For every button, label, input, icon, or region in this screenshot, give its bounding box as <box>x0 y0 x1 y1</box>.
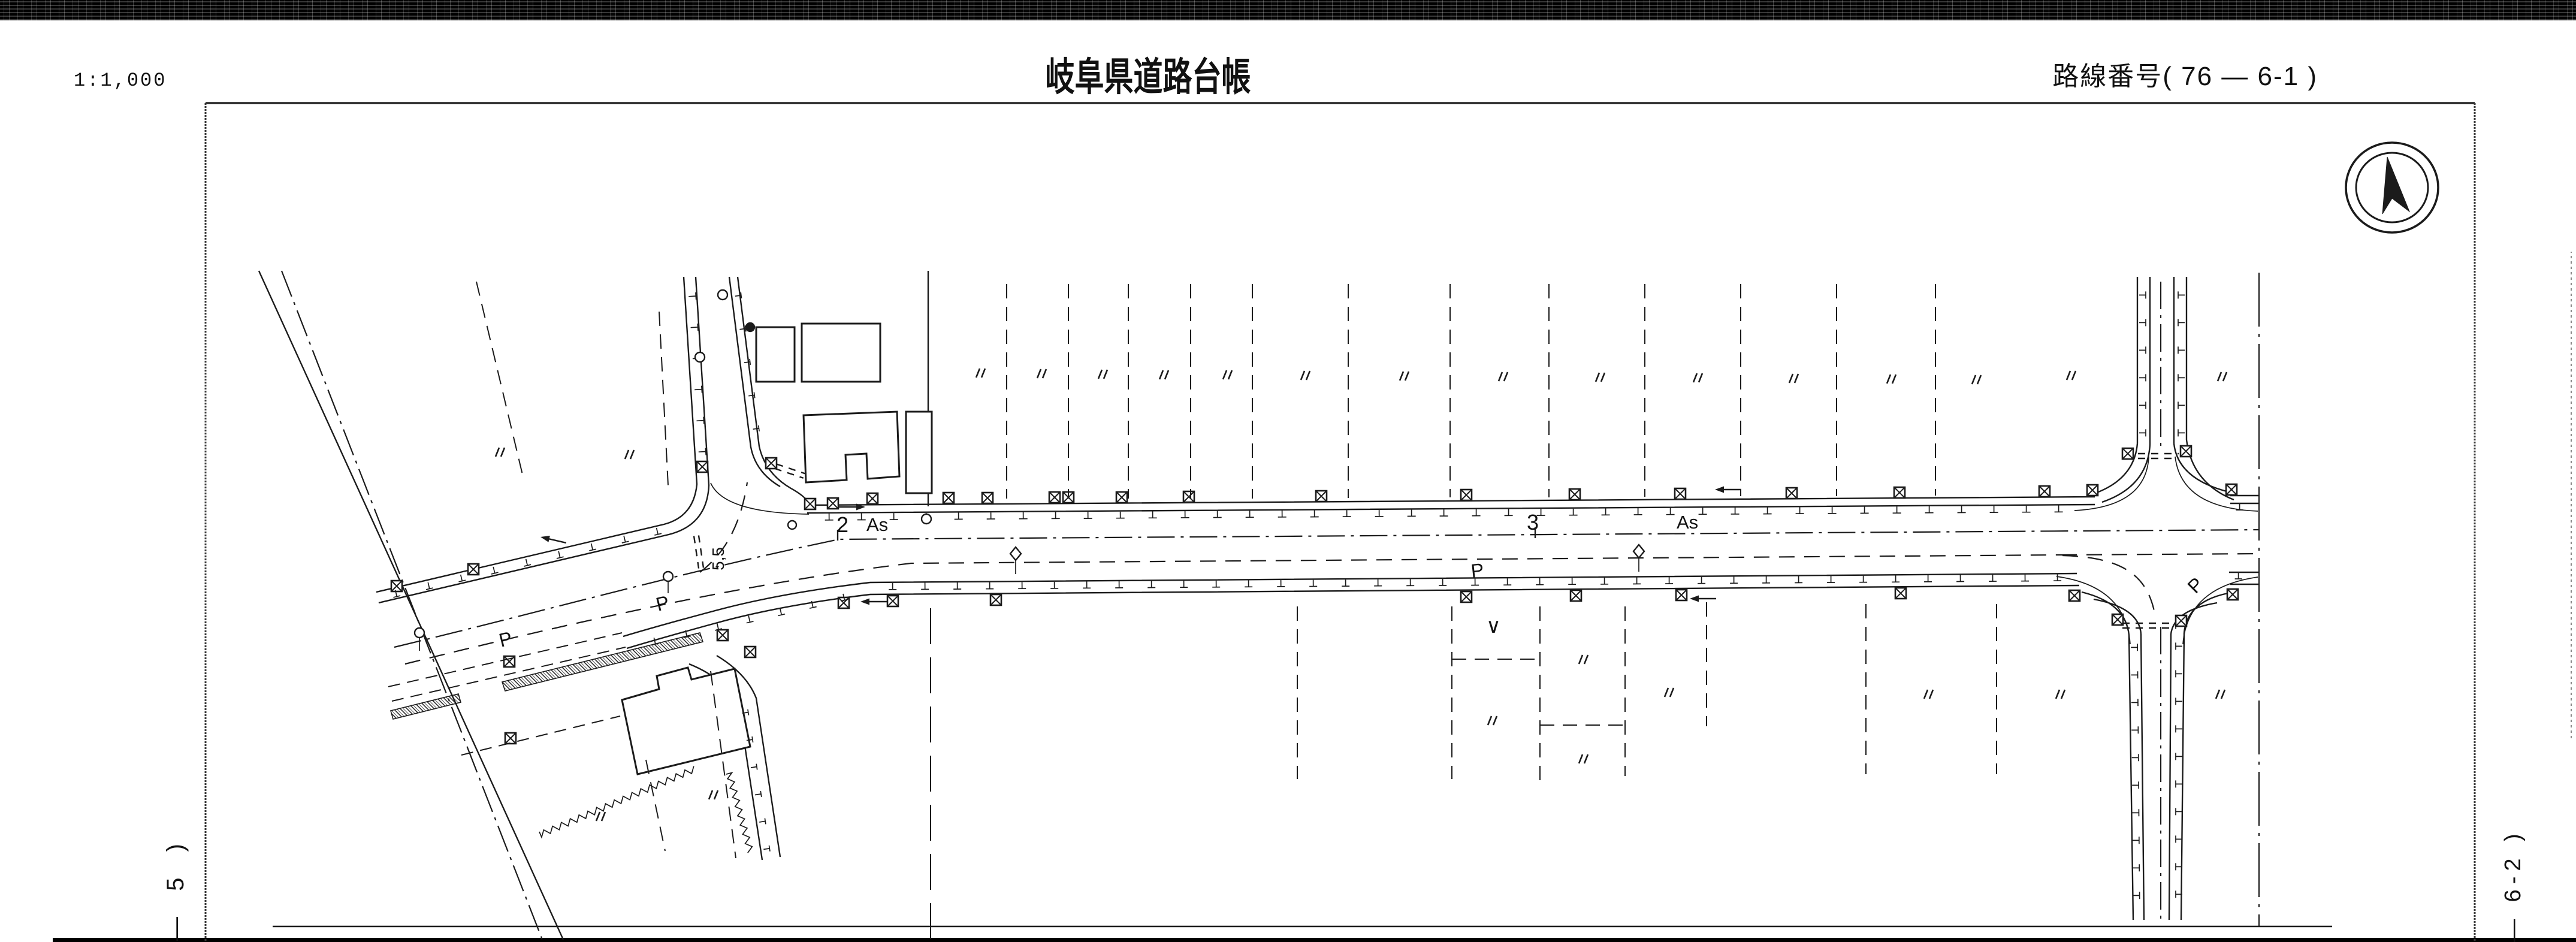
curb-tick-band <box>825 505 2063 520</box>
boundary-monument-icon <box>990 594 1001 605</box>
ditto-mark-icon <box>1488 716 1497 725</box>
boundary-lines <box>259 271 2332 940</box>
curb-tick-band <box>688 292 706 455</box>
pavement-label: As <box>1677 512 1698 533</box>
scale-label: 1:1,000 <box>74 70 167 92</box>
station-label: 3 <box>1527 510 1539 535</box>
route-number-label: 路線番号( 76 — 6-1 ) <box>2052 62 2318 91</box>
manhole-icon <box>718 290 727 300</box>
parking-label: P <box>654 591 671 615</box>
ditto-mark-icon <box>2216 690 2225 699</box>
nw-fillet-arc <box>2074 457 2149 511</box>
boundary-monument-icon <box>1895 588 1906 599</box>
boundary-monument-icon <box>2069 590 2080 601</box>
building-outline <box>802 324 880 382</box>
corner-fillet-arc <box>711 483 809 514</box>
sheet-background: 1:1,000 岐阜県道路台帳 路線番号( 76 — 6-1 ) — 5 ) —… <box>0 0 2576 942</box>
manhole-icon <box>922 514 931 524</box>
ditto-mark-icon <box>709 790 718 799</box>
parcel-dashed-line <box>392 647 626 701</box>
parcel-dashed-line <box>461 716 620 755</box>
boundary-monument-icon <box>697 461 708 472</box>
crossing-dash-mark <box>2138 454 2179 458</box>
boundary-monument-icon <box>2227 589 2238 600</box>
boundary-monument-icon <box>2087 485 2098 496</box>
manhole-icon <box>663 572 673 581</box>
parcel-dashed-line <box>476 282 523 475</box>
ditto-mark-icon <box>1223 370 1232 379</box>
boundary-monument-icon <box>1676 590 1687 600</box>
ditto-mark-icon <box>1596 373 1605 382</box>
direction-arrow-icon <box>540 534 567 547</box>
building-outline <box>622 668 750 774</box>
ditto-mark-icon <box>2067 371 2076 380</box>
ditto-mark-icon <box>1579 754 1588 763</box>
boundary-monument-icon <box>1894 487 1905 498</box>
ditto-mark-icon <box>2218 372 2227 381</box>
direction-arrow-icon <box>1715 487 1741 493</box>
boundary-monument-icon <box>717 630 728 641</box>
boundary-monument-icon <box>2181 446 2191 457</box>
boundary-monument-icon <box>1049 492 1060 503</box>
ditto-mark-icon <box>1499 372 1508 381</box>
embankment-sawtooth-line <box>539 766 694 838</box>
north-leg-right-curb <box>738 277 810 504</box>
boundary-monument-icon <box>1786 488 1797 499</box>
ditto-mark-icon <box>2056 690 2065 699</box>
sw-fillet-arc <box>2056 576 2130 644</box>
lane-dashed-line <box>405 554 2259 664</box>
parcel-dashed-line <box>659 312 668 485</box>
ditto-mark-icon <box>1301 371 1310 380</box>
parcel-dashed-line <box>646 760 665 851</box>
boundary-monument-icon <box>505 733 516 744</box>
west-boundary-chain-line <box>282 271 542 940</box>
crosshatch-strip-2 <box>391 694 461 719</box>
direction-arrow-icon <box>860 599 887 605</box>
ditto-mark-icon <box>625 450 634 459</box>
building-outline <box>804 412 899 482</box>
boundary-monument-icon <box>468 564 479 575</box>
buildings <box>622 324 932 774</box>
manhole-icon <box>746 323 754 331</box>
road-bottom-inner-edge <box>870 572 2259 582</box>
ditto-mark-icon <box>596 812 605 821</box>
boundary-monument-icon <box>2226 484 2237 495</box>
page-title: 岐阜県道路台帳 <box>1046 56 1251 99</box>
ditto-mark-icon <box>976 369 985 378</box>
adjacent-sheet-ref-left: — 5 ) <box>162 834 189 941</box>
se-corner-outer <box>2184 593 2228 633</box>
boundary-monument-icon <box>2039 486 2050 497</box>
scanned-road-register-sheet: { "header": { "scale_label": "1:1,000", … <box>0 0 2576 942</box>
boundary-monument-icon <box>1461 591 1472 602</box>
pole-diamond-icon <box>1633 545 1644 558</box>
ditto-mark-icon <box>1579 655 1588 664</box>
parking-label: P <box>2183 573 2207 597</box>
north-arrow-icon <box>2346 143 2438 233</box>
main-road <box>394 482 2259 664</box>
curb-tick-band <box>394 528 662 597</box>
road-bottom-outer-edge <box>870 584 2259 594</box>
direction-arrow-icon <box>1690 596 1716 602</box>
parking-label: P <box>497 627 514 651</box>
ditto-mark-icon <box>1693 373 1702 382</box>
boundary-monument-icon <box>887 596 898 606</box>
ditto-mark-icon <box>1037 369 1046 378</box>
boundary-monument-icon <box>1571 590 1581 601</box>
parking-label: P <box>1470 559 1485 582</box>
building-outline <box>906 412 932 493</box>
boundary-monument-icon <box>391 581 402 591</box>
boundary-monument-icon <box>805 499 816 509</box>
ditto-mark-icon <box>1924 690 1933 699</box>
crossing-dash-mark <box>2122 623 2176 628</box>
south-leg-east-curbs <box>2169 633 2184 920</box>
ditto-mark-icon <box>496 448 505 457</box>
cross-road-west-curbs <box>2137 277 2150 445</box>
crossing-dash-mark <box>694 535 703 568</box>
south-leg-west-curbs <box>2129 634 2144 920</box>
west-boundary-line <box>259 271 563 940</box>
west-curb-outer <box>376 277 697 592</box>
manhole-icon <box>695 352 705 362</box>
curb-tick-band <box>2235 573 2242 579</box>
ditto-mark-icon <box>1665 688 1674 697</box>
boundary-monument-icon <box>1461 490 1472 500</box>
boundary-monument-icon <box>1675 488 1686 499</box>
boundary-monument-icon <box>1569 489 1580 500</box>
generated-map-marks: PPPP5,5∨ <box>388 282 2243 940</box>
boundary-monument-icon <box>982 493 993 503</box>
ditto-mark-icon <box>1400 372 1409 381</box>
ditto-mark-icon <box>1098 370 1107 379</box>
curb-tick-band <box>2139 291 2146 436</box>
road-centerline <box>394 530 2259 647</box>
boundary-monument-icon <box>2176 615 2187 626</box>
road-annotations: 2 As 3 As <box>836 510 1698 537</box>
ditto-mark-icon <box>1159 370 1168 379</box>
road-register-map: 1:1,000 岐阜県道路台帳 路線番号( 76 — 6-1 ) — 5 ) —… <box>0 0 2576 942</box>
ditto-mark-icon <box>1887 375 1896 384</box>
manhole-icon <box>788 521 796 529</box>
boundary-monument-icon <box>504 656 515 667</box>
manhole-icon <box>415 628 424 638</box>
ditto-mark-icon <box>1972 375 1981 384</box>
boundary-monument-icon <box>745 647 756 657</box>
boundary-monument-icon <box>828 498 838 509</box>
drawing-frame <box>206 103 2475 942</box>
cross-road-east-curbs <box>2174 277 2187 443</box>
check-mark-label: ∨ <box>1486 615 1501 638</box>
boundary-monument-icon <box>766 458 777 469</box>
building-outline <box>756 327 795 382</box>
pole-diamond-icon <box>1010 547 1021 560</box>
road-width-label: 5,5 <box>709 547 727 570</box>
boundary-monument-icon <box>2122 448 2133 459</box>
boundary-monument-icon <box>1316 491 1327 502</box>
boundary-monument-icon <box>2112 614 2123 625</box>
crossing-dash-mark <box>775 464 805 478</box>
left-intersection <box>376 277 870 860</box>
boundary-monument-icon <box>1116 492 1127 503</box>
boundary-monument-icon <box>943 493 954 503</box>
adjacent-sheet-ref-right: — 6-2 ) <box>2500 828 2526 942</box>
boundary-monument-icon <box>867 493 878 504</box>
boundary-monument-icon <box>1183 491 1194 502</box>
pavement-label: As <box>866 514 888 535</box>
curb-tick-band <box>2178 291 2185 436</box>
lane-dashed-branch-south <box>2062 555 2155 614</box>
ditto-mark-icon <box>1789 374 1798 383</box>
